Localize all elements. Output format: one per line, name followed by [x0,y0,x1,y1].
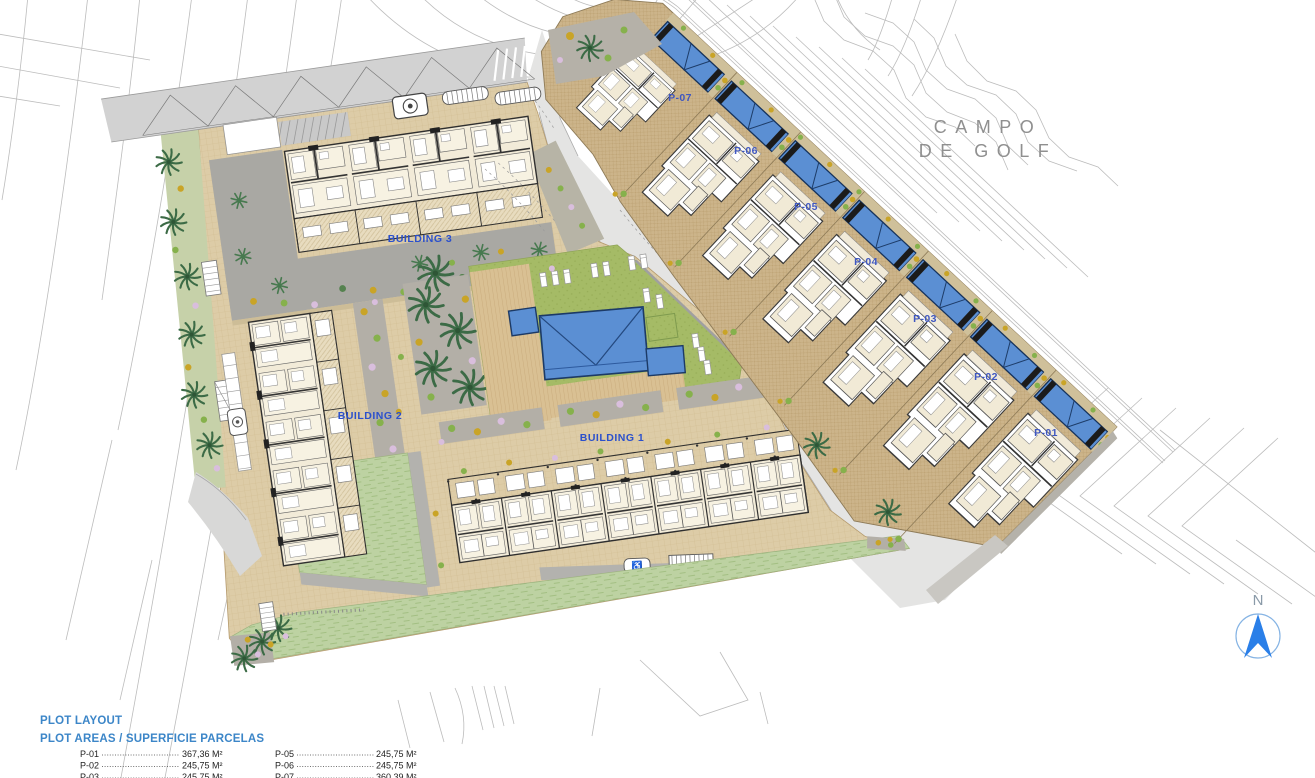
svg-text:P-06: P-06 [734,145,758,157]
svg-text:P-01: P-01 [80,749,99,759]
svg-text:P-02: P-02 [80,761,99,771]
svg-text:245,75 M²: 245,75 M² [376,761,417,771]
svg-text:BUILDING 2: BUILDING 2 [338,410,403,422]
svg-text:P-05: P-05 [794,201,818,213]
svg-text:N: N [1253,592,1264,609]
svg-text:360,39 M²: 360,39 M² [376,772,417,778]
svg-text:P-03: P-03 [913,313,937,325]
svg-text:CAMPO: CAMPO [934,117,1043,137]
svg-text:367,36 M²: 367,36 M² [182,749,223,759]
svg-text:PLOT AREAS / SUPERFICIE PARCEL: PLOT AREAS / SUPERFICIE PARCELAS [40,733,264,745]
svg-text:P-06: P-06 [275,761,294,771]
svg-text:BUILDING 3: BUILDING 3 [388,233,453,245]
svg-text:245,75 M²: 245,75 M² [376,749,417,759]
svg-text:P-05: P-05 [275,749,294,759]
svg-text:P-03: P-03 [80,772,99,778]
svg-text:DE GOLF: DE GOLF [919,141,1058,161]
svg-text:P-02: P-02 [974,371,998,383]
svg-text:P-07: P-07 [668,92,692,104]
svg-text:PLOT LAYOUT: PLOT LAYOUT [40,715,122,727]
svg-text:245,75 M²: 245,75 M² [182,761,223,771]
svg-text:245,75 M²: 245,75 M² [182,772,223,778]
svg-text:BUILDING 1: BUILDING 1 [580,432,645,444]
svg-text:P-01: P-01 [1034,427,1058,439]
svg-text:P-04: P-04 [854,256,878,268]
svg-text:P-07: P-07 [275,772,294,778]
